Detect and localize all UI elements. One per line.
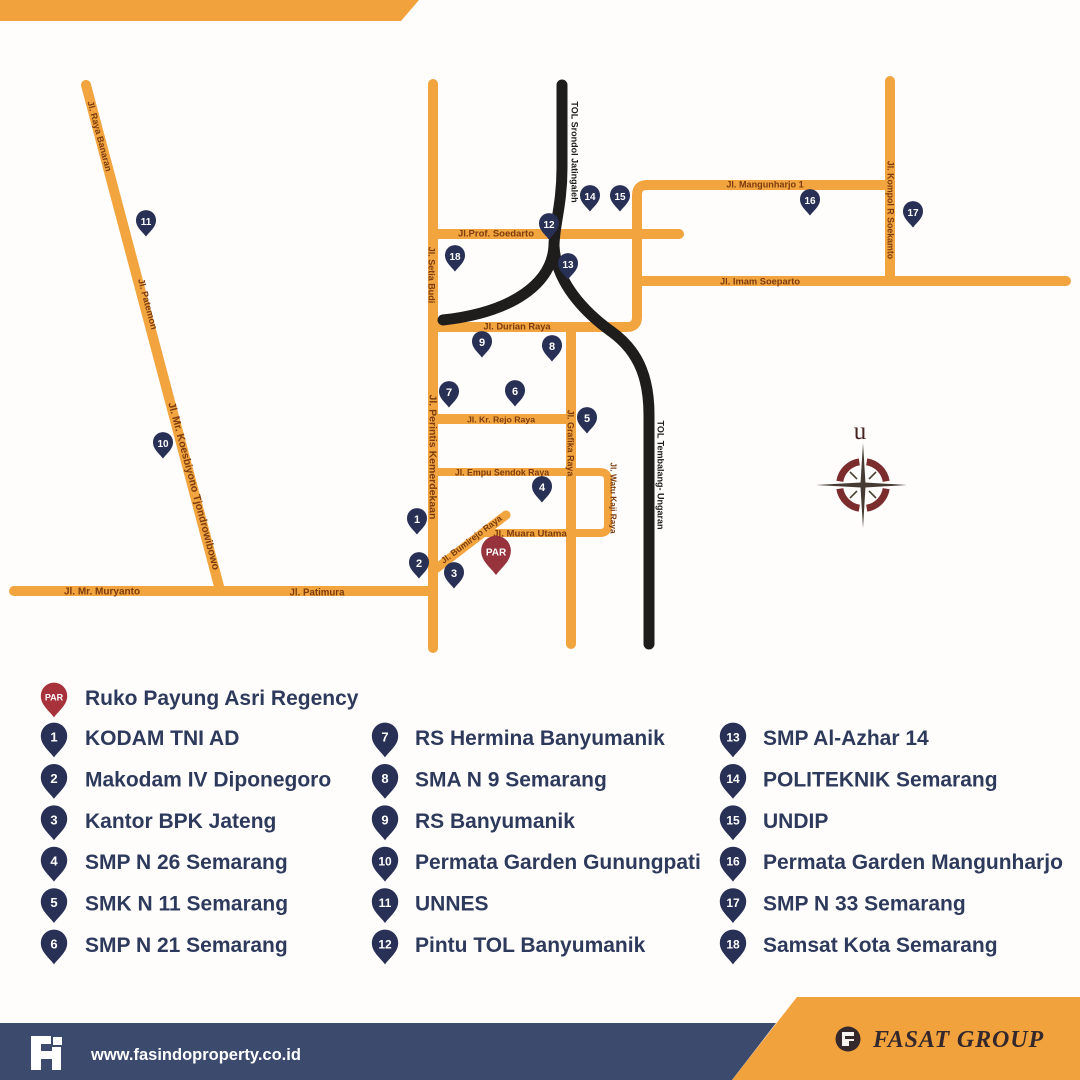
svg-text:12: 12 xyxy=(378,938,392,952)
svg-text:Jl. Kr. Rejo Raya: Jl. Kr. Rejo Raya xyxy=(467,414,535,424)
svg-text:7: 7 xyxy=(446,387,452,399)
svg-text:18: 18 xyxy=(449,252,461,263)
svg-text:11: 11 xyxy=(141,217,152,228)
svg-text:4: 4 xyxy=(50,854,58,869)
svg-text:Jl. Kompol R Soekamto: Jl. Kompol R Soekamto xyxy=(886,161,896,260)
svg-text:Jl. Grafika Raya: Jl. Grafika Raya xyxy=(566,410,576,477)
svg-text:14: 14 xyxy=(584,192,596,203)
svg-text:Jl. Watu Kaji Raya: Jl. Watu Kaji Raya xyxy=(609,462,619,534)
svg-text:Pintu TOL Banyumanik: Pintu TOL Banyumanik xyxy=(415,934,646,957)
svg-text:Jl. Setia Budi: Jl. Setia Budi xyxy=(427,247,437,304)
svg-text:6: 6 xyxy=(512,386,518,398)
svg-text:14: 14 xyxy=(726,772,740,786)
svg-text:17: 17 xyxy=(907,208,919,219)
svg-text:SMP Al-Azhar 14: SMP Al-Azhar 14 xyxy=(763,727,929,750)
svg-text:SMP N 21 Semarang: SMP N 21 Semarang xyxy=(85,934,288,957)
svg-text:4: 4 xyxy=(539,482,546,494)
svg-text:8: 8 xyxy=(549,341,555,353)
svg-text:2: 2 xyxy=(416,558,422,570)
svg-text:Jl. Mangunharjo 1: Jl. Mangunharjo 1 xyxy=(726,179,803,189)
svg-text:TOL Tembalang- Ungaran: TOL Tembalang- Ungaran xyxy=(656,420,666,529)
svg-text:u: u xyxy=(854,418,867,445)
svg-text:Jl. Imam Soeparto: Jl. Imam Soeparto xyxy=(720,276,800,286)
svg-text:Permata Garden Mangunharjo: Permata Garden Mangunharjo xyxy=(763,851,1063,874)
svg-text:13: 13 xyxy=(562,260,574,271)
svg-text:1: 1 xyxy=(414,514,420,526)
svg-text:2: 2 xyxy=(50,771,57,786)
svg-text:7: 7 xyxy=(381,730,388,745)
svg-text:10: 10 xyxy=(378,855,392,869)
svg-text:11: 11 xyxy=(379,896,392,910)
svg-text:9: 9 xyxy=(479,337,485,349)
svg-text:1: 1 xyxy=(50,730,57,745)
svg-text:Samsat Kota Semarang: Samsat Kota Semarang xyxy=(763,934,998,957)
svg-text:Jl. Patimura: Jl. Patimura xyxy=(290,587,346,598)
svg-text:16: 16 xyxy=(804,196,816,207)
svg-text:POLITEKNIK Semarang: POLITEKNIK Semarang xyxy=(763,768,998,791)
svg-text:18: 18 xyxy=(726,938,740,952)
svg-text:UNNES: UNNES xyxy=(415,893,489,916)
svg-text:Jl. Muara Utama: Jl. Muara Utama xyxy=(493,528,567,539)
svg-text:12: 12 xyxy=(543,220,555,231)
svg-text:SMK N 11 Semarang: SMK N 11 Semarang xyxy=(85,893,288,916)
svg-text:Jl. Durian Raya: Jl. Durian Raya xyxy=(483,321,551,331)
svg-text:Jl. Empu Sendok Raya: Jl. Empu Sendok Raya xyxy=(455,467,549,477)
svg-text:Jl. Mr. Muryanto: Jl. Mr. Muryanto xyxy=(64,586,140,597)
svg-text:5: 5 xyxy=(50,895,57,910)
svg-text:13: 13 xyxy=(726,731,740,745)
svg-text:15: 15 xyxy=(614,192,626,203)
svg-text:3: 3 xyxy=(50,812,57,827)
svg-text:17: 17 xyxy=(726,896,740,910)
svg-text:Kantor BPK Jateng: Kantor BPK Jateng xyxy=(85,810,276,833)
svg-text:UNDIP: UNDIP xyxy=(763,810,828,833)
svg-text:Jl.Prof. Soedarto: Jl.Prof. Soedarto xyxy=(458,228,534,239)
svg-text:TOL Srondol Jatingaleh: TOL Srondol Jatingaleh xyxy=(570,101,580,202)
svg-text:SMA N 9 Semarang: SMA N 9 Semarang xyxy=(415,768,607,791)
svg-text:SMP N 26 Semarang: SMP N 26 Semarang xyxy=(85,851,288,874)
svg-text:PAR: PAR xyxy=(486,548,507,559)
svg-text:8: 8 xyxy=(381,771,388,786)
svg-text:RS Banyumanik: RS Banyumanik xyxy=(415,810,575,833)
svg-text:9: 9 xyxy=(381,812,388,827)
svg-text:FASAT GROUP: FASAT GROUP xyxy=(872,1027,1044,1053)
svg-text:PAR: PAR xyxy=(45,693,64,703)
svg-text:5: 5 xyxy=(584,413,590,425)
svg-text:Permata Garden Gunungpati: Permata Garden Gunungpati xyxy=(415,851,701,874)
svg-text:Makodam IV Diponegoro: Makodam IV Diponegoro xyxy=(85,768,331,791)
svg-text:www.fasindoproperty.co.id: www.fasindoproperty.co.id xyxy=(90,1046,301,1064)
svg-text:Jl. Perintis Kemerdekaan: Jl. Perintis Kemerdekaan xyxy=(427,395,439,520)
svg-text:RS Hermina Banyumanik: RS Hermina Banyumanik xyxy=(415,727,665,750)
svg-text:3: 3 xyxy=(451,568,457,580)
svg-text:SMP N 33 Semarang: SMP N 33 Semarang xyxy=(763,893,966,916)
svg-text:6: 6 xyxy=(50,937,57,952)
svg-text:15: 15 xyxy=(726,813,740,827)
svg-text:KODAM TNI AD: KODAM TNI AD xyxy=(85,727,239,750)
svg-text:10: 10 xyxy=(157,439,169,450)
svg-text:16: 16 xyxy=(726,855,740,869)
svg-text:Ruko Payung Asri Regency: Ruko Payung Asri Regency xyxy=(85,687,359,710)
